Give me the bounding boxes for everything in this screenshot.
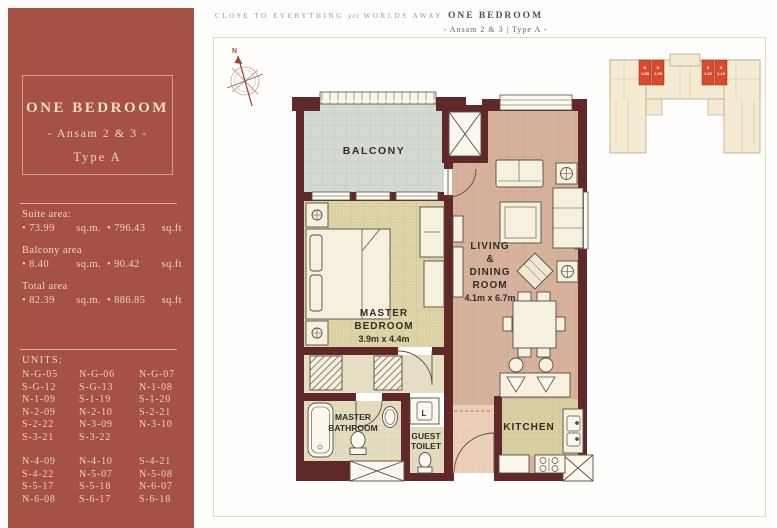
unit-code: S-6-18: [139, 494, 186, 505]
pillow: [310, 275, 322, 311]
guest-toilet-label: GUEST: [411, 431, 441, 441]
unit-code: N-1-09: [22, 394, 79, 405]
area-metric-value: • 82.39: [22, 295, 55, 306]
living-label: LIVING: [470, 241, 509, 252]
keyplan-unit-label: S: [707, 65, 710, 70]
balcony-label: BALCONY: [343, 145, 405, 157]
keyplan-unit-label: N: [644, 65, 647, 70]
units-list-upper: N-G-05N-G-06N-G-07S-G-12S-G-13N-1-08N-1-…: [22, 369, 186, 443]
bathroom-label: MASTER: [335, 412, 371, 422]
sofa: [496, 160, 543, 187]
counter: [499, 455, 529, 473]
keyplan-unit-label: 1-20: [704, 71, 713, 76]
unit-code: S-4-21: [139, 456, 186, 467]
brand-tagline: CLOSE TO EVERYTHING yet WORLDS AWAY: [215, 12, 443, 20]
units-heading: UNITS:: [22, 355, 186, 366]
unit-code: S-4-22: [22, 469, 79, 480]
header-title: ONE BEDROOM: [413, 11, 578, 21]
barstool: [509, 358, 523, 372]
unit-code: N-3-09: [79, 419, 139, 430]
area-imperial-unit: sq.ft: [162, 295, 182, 306]
compass-north-label: N: [232, 48, 237, 55]
area-label: Balcony area: [22, 245, 182, 256]
unit-code: N-G-06: [79, 369, 139, 380]
plan-type: Type A: [23, 150, 172, 165]
area-imperial-unit: sq.ft: [162, 223, 182, 234]
unit-code: S-2-22: [22, 419, 79, 430]
area-imperial-value: • 796.43: [107, 223, 145, 234]
area-label: Suite area:: [22, 209, 182, 220]
keyplan-unit-label: N: [657, 65, 660, 70]
unit-code: N-G-07: [139, 369, 186, 380]
laundry-label: L: [422, 409, 427, 418]
unit-code: S-5-17: [22, 481, 79, 492]
bedroom-dimensions: 3.9m x 4.4m: [358, 334, 409, 344]
unit-code: N-4-10: [79, 456, 139, 467]
unit-code: N-5-07: [79, 469, 139, 480]
units-list-lower: N-4-09N-4-10S-4-21S-4-22N-5-07N-5-08S-5-…: [22, 456, 186, 505]
keyplan-unit-label: 1-08: [641, 71, 650, 76]
area-metric-unit: sq.m.: [76, 259, 101, 270]
plan-subtitle: - Ansam 2 & 3 -: [23, 126, 172, 141]
living-label: ROOM: [472, 280, 507, 291]
compass-icon: N: [218, 44, 278, 110]
area-imperial-value: • 90.42: [107, 259, 140, 270]
keyplan-unit-label: 1-19: [717, 71, 726, 76]
area-imperial-value: • 886.85: [107, 295, 145, 306]
building-outline: [610, 54, 760, 153]
desk: [424, 261, 444, 307]
unit-code: S-1-20: [139, 394, 186, 405]
area-metric-unit: sq.m.: [76, 223, 101, 234]
keyplan-unit-label: 1-09: [654, 71, 663, 76]
unit-code: N-5-08: [139, 469, 186, 480]
toilet: [351, 432, 365, 449]
guest-toilet-label: TOILET: [411, 441, 442, 451]
dining-chair: [518, 292, 531, 301]
sidebar-panel: ONE BEDROOM - Ansam 2 & 3 - Type A Suite…: [8, 8, 194, 528]
dining-chair: [518, 348, 531, 357]
unit-code: S-6-17: [79, 494, 139, 505]
units-section: UNITS: N-G-05N-G-06N-G-07S-G-12S-G-13N-1…: [22, 355, 186, 505]
bedroom-label: MASTER: [360, 308, 408, 319]
plan-title: ONE BEDROOM: [23, 100, 172, 117]
areas-section: Suite area: • 73.99sq.m. • 796.43sq.ft B…: [22, 209, 182, 317]
unit-code: S-G-13: [79, 382, 139, 393]
tv-console: [453, 216, 463, 242]
unit-code: S-1-19: [79, 394, 139, 405]
toilet: [419, 453, 431, 468]
divider: [20, 203, 177, 204]
unit-code: N-G-05: [22, 369, 79, 380]
living-window: [500, 95, 572, 110]
dining-table: [513, 301, 556, 348]
unit-code: S-3-22: [79, 432, 139, 443]
unit-code: N-6-07: [139, 481, 186, 492]
area-label: Total area: [22, 281, 182, 292]
unit-code: S-2-21: [139, 407, 186, 418]
total-area: Total area • 82.39sq.m. • 886.85sq.ft: [22, 281, 182, 306]
suite-area: Suite area: • 73.99sq.m. • 796.43sq.ft: [22, 209, 182, 234]
tagline-part: CLOSE TO EVERYTHING: [215, 12, 344, 20]
toilet-tank: [418, 467, 432, 473]
keyplan-unit-label: S: [720, 65, 723, 70]
unit-code: S-G-12: [22, 382, 79, 393]
bedroom-label: BEDROOM: [354, 321, 413, 332]
area-metric-unit: sq.m.: [76, 295, 101, 306]
living-label: DINING: [470, 267, 511, 278]
unit-code: N-1-08: [139, 382, 186, 393]
coffee-table: [500, 202, 541, 243]
unit-code: N-3-10: [139, 419, 186, 430]
toilet-tank: [350, 448, 366, 455]
unit-code: S-3-21: [22, 432, 79, 443]
area-metric-value: • 8.40: [22, 259, 49, 270]
page-header: ONE BEDROOM - Ansam 2 & 3 | Type A -: [413, 11, 578, 34]
area-metric-value: • 73.99: [22, 223, 55, 234]
dining-chair: [537, 348, 550, 357]
balcony-railing: [320, 92, 436, 104]
dining-chair: [537, 292, 550, 301]
wardrobe: [310, 356, 342, 390]
unit-code: N-4-09: [22, 456, 79, 467]
dining-chair: [503, 317, 512, 331]
balcony-area: Balcony area • 8.40sq.m. • 90.42sq.ft: [22, 245, 182, 270]
bathroom-label: BATHROOM: [328, 423, 377, 433]
living-dimensions: 4.1m x 6.7m: [464, 293, 515, 303]
living-label: &: [486, 254, 493, 265]
unit-code: N-6-08: [22, 494, 79, 505]
pillow: [310, 235, 322, 271]
barstool: [539, 358, 553, 372]
floor-plan: BALCONY MASTER BEDROOM 3.9m x 4.4m LIVIN…: [286, 89, 596, 494]
divider: [20, 349, 177, 350]
brochure-page: ONE BEDROOM - Ansam 2 & 3 - Type A Suite…: [0, 0, 777, 528]
header-subtitle: - Ansam 2 & 3 | Type A -: [413, 25, 578, 34]
wardrobe: [374, 356, 402, 390]
building-key-plan: N 1-08 N 1-09 S 1-20 S 1-19: [604, 47, 764, 159]
kitchen-label: KITCHEN: [503, 422, 554, 433]
tagline-part-italic: yet: [348, 12, 359, 20]
plan-title-box: ONE BEDROOM - Ansam 2 & 3 - Type A: [22, 75, 173, 175]
tv-console: [453, 247, 463, 297]
dining-chair: [556, 317, 565, 331]
plan-card: N N 1-08 N 1-09 S: [213, 37, 766, 517]
sofa-right: [553, 188, 583, 248]
stove: [535, 455, 565, 473]
unit-code: N-2-09: [22, 407, 79, 418]
area-imperial-unit: sq.ft: [162, 259, 182, 270]
unit-code: S-5-18: [79, 481, 139, 492]
unit-code: N-2-10: [79, 407, 139, 418]
